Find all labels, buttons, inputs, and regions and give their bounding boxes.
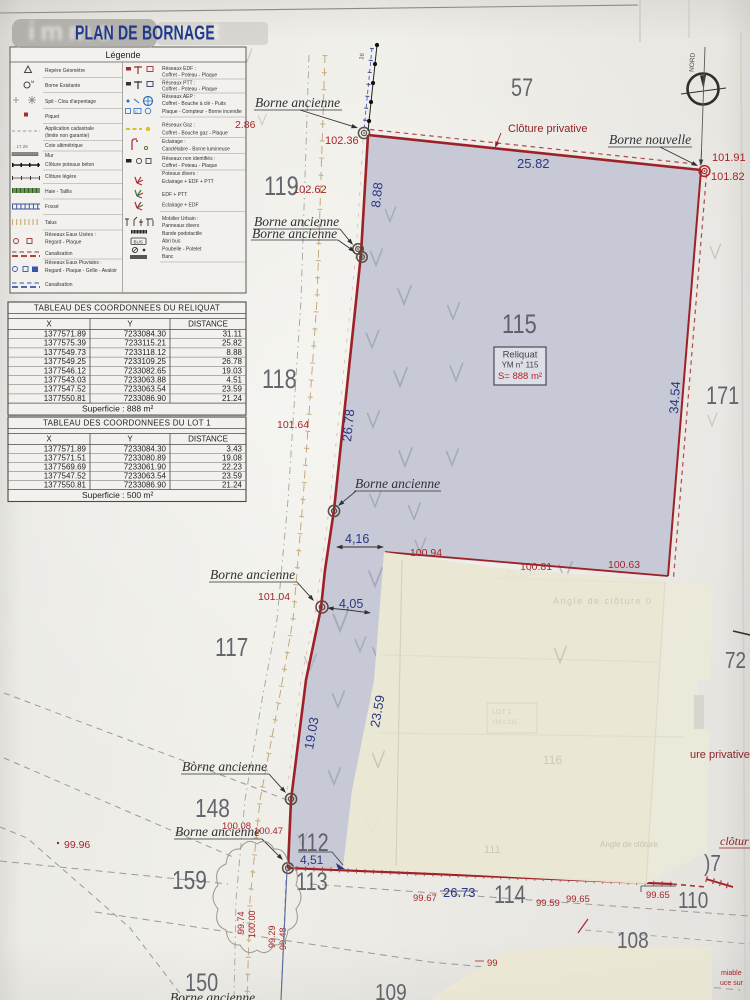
svg-text:Cote altimétrique: Cote altimétrique (45, 143, 83, 149)
svg-text:100.00: 100.00 (247, 910, 257, 938)
svg-text:TABLEAU DES COORDONNEES DU REL: TABLEAU DES COORDONNEES DU RELIQUAT (34, 304, 220, 313)
svg-text:99.67: 99.67 (413, 893, 437, 904)
svg-text:Superficie : 888 m²: Superficie : 888 m² (82, 404, 154, 414)
svg-text:100.63: 100.63 (608, 559, 640, 571)
svg-text:Coffret - Bouche gaz - Plaque: Coffret - Bouche gaz - Plaque (162, 131, 228, 137)
svg-text:M: M (31, 79, 34, 84)
svg-text:7233118.12: 7233118.12 (124, 348, 166, 357)
svg-text:Clôture privative: Clôture privative (508, 123, 587, 135)
svg-text:Canalisation: Canalisation (45, 251, 73, 257)
svg-text:4,05: 4,05 (339, 597, 363, 611)
svg-text:Bande podotactile: Bande podotactile (162, 231, 202, 237)
svg-text:7233086.90: 7233086.90 (124, 480, 167, 489)
svg-text:Borne ancienne: Borne ancienne (210, 567, 295, 582)
svg-text:Mobilier Urbain :: Mobilier Urbain : (162, 216, 198, 222)
svg-text:Légende: Légende (105, 50, 140, 60)
svg-text:19.08: 19.08 (222, 453, 243, 462)
svg-text:7233061.90: 7233061.90 (124, 462, 167, 471)
svg-text:7233084.30: 7233084.30 (124, 330, 167, 339)
svg-text:110: 110 (678, 887, 708, 913)
svg-text:25.82: 25.82 (222, 339, 243, 348)
svg-text:Clôture poteaux béton: Clôture poteaux béton (45, 162, 94, 168)
svg-text:1377575.39: 1377575.39 (44, 339, 87, 348)
svg-text:99.74: 99.74 (236, 911, 246, 934)
svg-text:1377571.89: 1377571.89 (44, 330, 87, 339)
svg-text:1377550.81: 1377550.81 (44, 394, 87, 403)
svg-text:Mur: Mur (45, 153, 54, 159)
svg-text:7233063.54: 7233063.54 (124, 471, 167, 480)
svg-text:Panneaux divers: Panneaux divers (162, 223, 200, 229)
svg-text:57: 57 (511, 74, 533, 102)
svg-text:Candélabre - Borne lumineuse: Candélabre - Borne lumineuse (162, 147, 230, 153)
svg-text:Réseaux Gaz :: Réseaux Gaz : (162, 123, 195, 129)
svg-text:102.36: 102.36 (325, 135, 359, 147)
svg-text:4.51: 4.51 (226, 376, 242, 385)
svg-text:Eclairage + EDF + PTT: Eclairage + EDF + PTT (162, 179, 214, 185)
svg-text:99.96: 99.96 (64, 839, 90, 851)
svg-text:. 17.25: . 17.25 (14, 144, 28, 149)
svg-text:1377547.52: 1377547.52 (44, 471, 87, 480)
svg-text:Haie - Taillis: Haie - Taillis (45, 189, 72, 195)
svg-text:4,16: 4,16 (345, 532, 369, 546)
svg-text:7233080.89: 7233080.89 (124, 453, 167, 462)
svg-text:TABLEAU DES COORDONNEES DU LOT: TABLEAU DES COORDONNEES DU LOT 1 (43, 419, 211, 428)
svg-text:Bòrne ancienne: Bòrne ancienne (182, 759, 267, 774)
svg-text:99.65: 99.65 (646, 890, 670, 901)
svg-text:117: 117 (215, 633, 248, 662)
svg-text:NORD: NORD (689, 52, 697, 72)
svg-text:LOT 1: LOT 1 (492, 709, 511, 716)
svg-text:ure privative: ure privative (690, 749, 750, 761)
svg-text:Talus: Talus (45, 220, 57, 226)
svg-text:C: C (135, 109, 138, 114)
svg-text:Plaque - Compteur - Borne ince: Plaque - Compteur - Borne incendie (162, 109, 242, 115)
svg-text:1377550.81: 1377550.81 (44, 480, 87, 489)
svg-text:Réseaux AEP :: Réseaux AEP : (162, 94, 196, 100)
svg-text:99.65: 99.65 (566, 894, 590, 905)
svg-text:Coffret - Bouche à clé - Puits: Coffret - Bouche à clé - Puits (162, 101, 226, 107)
svg-text:113: 113 (296, 868, 328, 896)
svg-text:7233084.30: 7233084.30 (124, 444, 167, 453)
svg-text:19.03: 19.03 (222, 366, 243, 375)
svg-text:Y: Y (127, 320, 133, 329)
svg-text:DISTANCE: DISTANCE (188, 320, 228, 329)
svg-text:EDF + PTT: EDF + PTT (162, 192, 187, 198)
svg-text:YM n 115: YM n 115 (492, 720, 518, 726)
svg-text:72: 72 (725, 647, 746, 673)
svg-text:111: 111 (484, 844, 501, 856)
svg-text:100.08: 100.08 (222, 821, 251, 832)
svg-text:Eclairage :: Eclairage : (162, 139, 186, 145)
svg-text:99: 99 (487, 958, 498, 969)
svg-text:1377547.52: 1377547.52 (44, 385, 87, 394)
svg-text:118: 118 (262, 365, 297, 395)
svg-text:101.91: 101.91 (712, 152, 746, 164)
svg-text:miable: miable (721, 970, 742, 977)
svg-text:101.82: 101.82 (711, 171, 745, 183)
svg-text:25.82: 25.82 (517, 156, 550, 171)
svg-text:Borne Existante: Borne Existante (45, 83, 81, 89)
svg-text:Application cadastrale: Application cadastrale (45, 126, 94, 132)
svg-text:DISTANCE: DISTANCE (188, 435, 228, 444)
svg-text:Fossé: Fossé (45, 204, 59, 210)
svg-text:Angle de clôture 0: Angle de clôture 0 (553, 596, 653, 606)
svg-text:115: 115 (502, 310, 537, 340)
svg-text:8.88: 8.88 (368, 182, 386, 209)
svg-text:112: 112 (297, 829, 329, 857)
svg-text:Reliquat: Reliquat (503, 350, 538, 361)
svg-text:150: 150 (185, 969, 218, 997)
svg-text:Borne nouvelle: Borne nouvelle (609, 132, 691, 147)
svg-text:101.04: 101.04 (258, 591, 290, 603)
svg-text:Banc: Banc (162, 254, 174, 260)
svg-text:Borne ancienne: Borne ancienne (355, 476, 440, 491)
svg-text:116: 116 (543, 753, 562, 767)
svg-text:clôtur: clôtur (720, 834, 749, 848)
svg-text:1377569.69: 1377569.69 (44, 462, 87, 471)
svg-text:Piquet: Piquet (45, 114, 60, 120)
svg-text:21.24: 21.24 (222, 394, 243, 403)
svg-text:7233115.21: 7233115.21 (124, 339, 166, 348)
svg-text:22.23: 22.23 (222, 462, 243, 471)
svg-text:7233082.65: 7233082.65 (124, 366, 167, 375)
svg-text:Réseaux Eaux Pluviales :: Réseaux Eaux Pluviales : (45, 260, 102, 266)
svg-text:8.88: 8.88 (226, 348, 242, 357)
svg-text:YM n° 115: YM n° 115 (502, 361, 539, 370)
svg-text:119: 119 (264, 172, 299, 202)
svg-text:26.78: 26.78 (222, 357, 243, 366)
svg-text:Réseaux Eaux Usées :: Réseaux Eaux Usées : (45, 232, 96, 238)
svg-text:99.59: 99.59 (536, 898, 560, 909)
svg-text:Borne ancienne: Borne ancienne (252, 226, 337, 241)
svg-text:BUS: BUS (134, 240, 143, 245)
svg-text:1377549.25: 1377549.25 (44, 357, 87, 366)
svg-text:108: 108 (617, 927, 649, 953)
svg-text:23.59: 23.59 (222, 385, 243, 394)
svg-text:159: 159 (172, 866, 207, 895)
svg-text:2.86: 2.86 (235, 119, 256, 131)
svg-text:148: 148 (195, 794, 230, 823)
svg-text:34.54: 34.54 (666, 381, 683, 415)
svg-text:1377571.89: 1377571.89 (44, 444, 87, 453)
svg-text:Canalisation: Canalisation (45, 282, 73, 288)
svg-text:Regard - Plaque - Grille - Ava: Regard - Plaque - Grille - Avaloir (45, 268, 117, 274)
svg-text:Poteaux divers :: Poteaux divers : (162, 171, 198, 177)
svg-text:Coffret - Poteau - Plaque: Coffret - Poteau - Plaque (162, 87, 217, 93)
svg-text:Réseaux non identifiés :: Réseaux non identifiés : (162, 156, 215, 162)
svg-text:Poubelle - Potelet: Poubelle - Potelet (162, 247, 202, 253)
svg-text:Borne ancienne: Borne ancienne (255, 95, 340, 110)
svg-text:S= 888 m²: S= 888 m² (498, 371, 542, 382)
svg-text:16: 16 (359, 52, 366, 60)
svg-text:23.59: 23.59 (222, 471, 243, 480)
svg-text:Repère Géomètre: Repère Géomètre (45, 68, 85, 74)
svg-text:7233086.90: 7233086.90 (124, 394, 167, 403)
svg-text:1377546.12: 1377546.12 (44, 366, 87, 375)
svg-text:7233063.54: 7233063.54 (124, 385, 167, 394)
svg-text:171: 171 (706, 382, 739, 410)
svg-text:Angle de clôture: Angle de clôture (600, 840, 658, 849)
svg-text:7233109.25: 7233109.25 (124, 357, 167, 366)
svg-text:7233063.88: 7233063.88 (124, 376, 167, 385)
svg-text:Regard - Plaque: Regard - Plaque (45, 240, 82, 246)
svg-text:)7: )7 (704, 850, 721, 876)
svg-text:Coffret - Poteau - Plaque: Coffret - Poteau - Plaque (162, 73, 217, 79)
svg-text:X: X (46, 320, 52, 329)
svg-text:Coffret - Poteau - Plaque: Coffret - Poteau - Plaque (162, 163, 217, 169)
svg-text:100.47: 100.47 (254, 826, 283, 837)
svg-text:26.73: 26.73 (443, 885, 476, 900)
svg-text:109: 109 (375, 979, 407, 1000)
svg-text:114: 114 (494, 881, 526, 909)
svg-text:1377549.73: 1377549.73 (44, 348, 87, 357)
svg-text:Clôture légère: Clôture légère (45, 174, 77, 180)
svg-text:X: X (46, 435, 52, 444)
svg-text:Superficie : 500 m²: Superficie : 500 m² (82, 490, 154, 500)
svg-text:Eclairage + EDF: Eclairage + EDF (162, 203, 199, 209)
svg-text:Spit - Clou d'arpentage: Spit - Clou d'arpentage (45, 99, 96, 105)
svg-text:31.11: 31.11 (223, 330, 243, 339)
svg-text:1377571.51: 1377571.51 (44, 453, 87, 462)
svg-text:21.24: 21.24 (222, 480, 243, 489)
svg-text:Réseaux EDF :: Réseaux EDF : (162, 66, 196, 72)
svg-text:101.64: 101.64 (277, 419, 309, 431)
svg-text:(limite non garantie): (limite non garantie) (45, 133, 90, 139)
svg-text:uce sur: uce sur (720, 980, 744, 987)
svg-text:Abri bus: Abri bus (162, 239, 181, 245)
svg-text:1377543.03: 1377543.03 (44, 376, 87, 385)
svg-text:Y: Y (127, 435, 133, 444)
svg-text:3.43: 3.43 (226, 444, 242, 453)
